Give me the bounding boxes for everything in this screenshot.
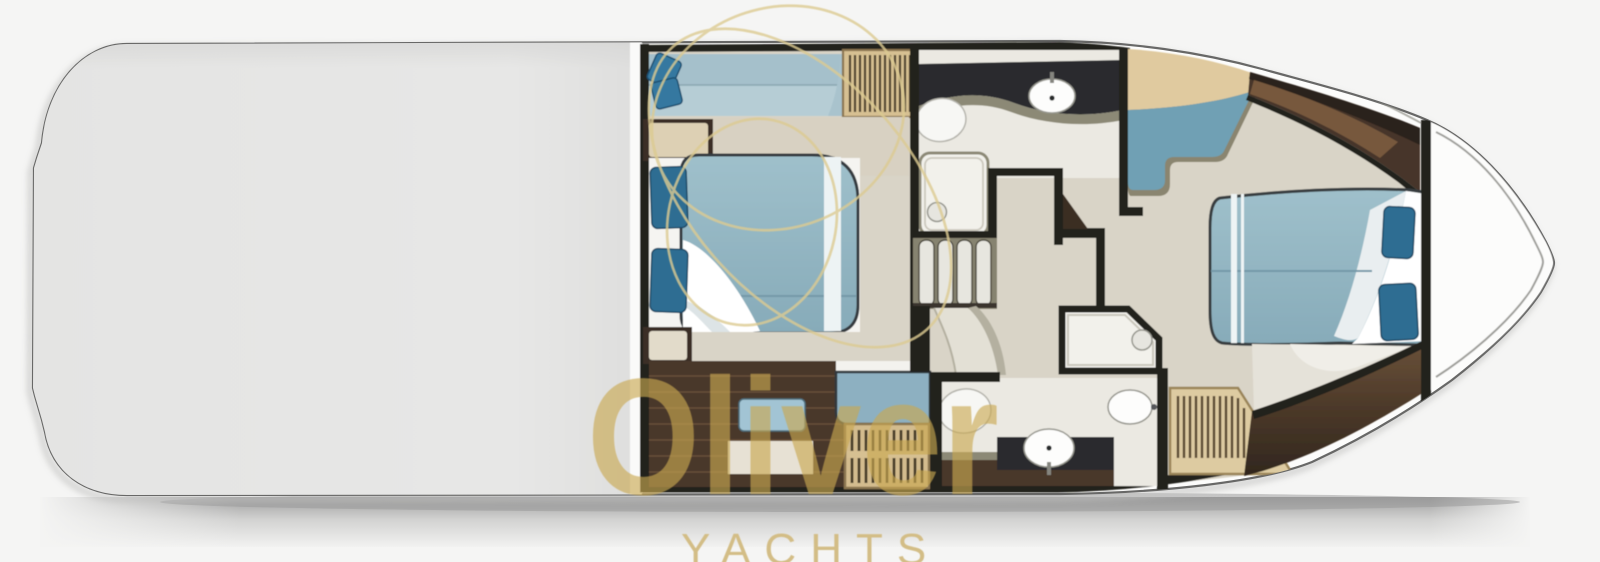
svg-text:Oliver: Oliver xyxy=(587,345,999,530)
svg-text:YACHTS: YACHTS xyxy=(681,525,940,562)
